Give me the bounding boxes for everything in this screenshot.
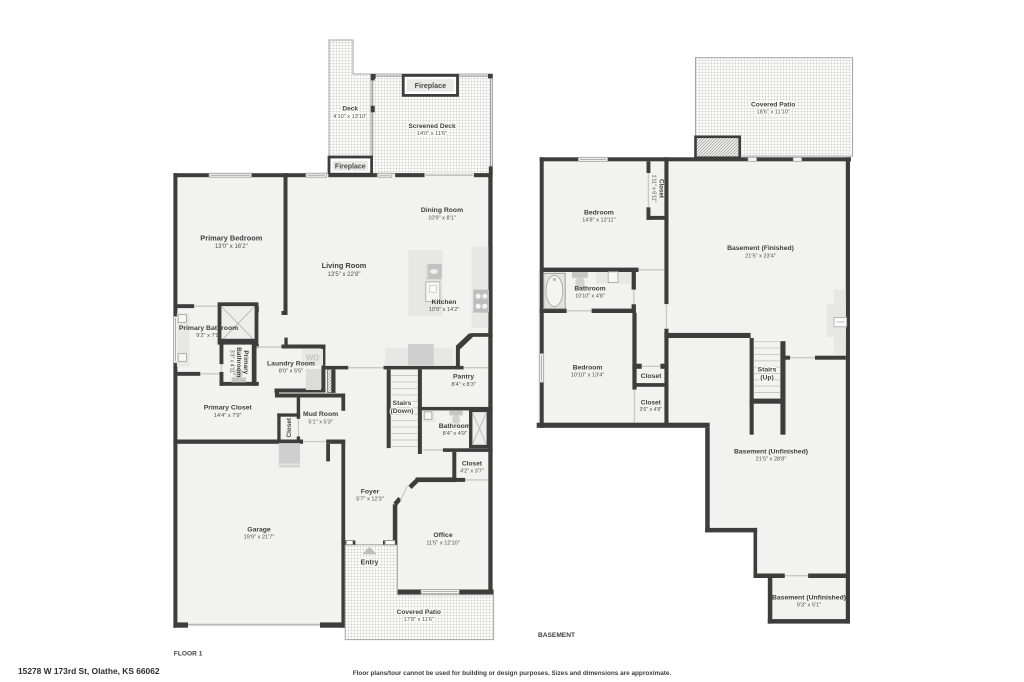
svg-text:17'8" x 11'6": 17'8" x 11'6" <box>404 617 434 623</box>
svg-text:5'1" x 5'3": 5'1" x 5'3" <box>308 419 332 425</box>
svg-text:Living Room: Living Room <box>322 261 367 270</box>
svg-text:8'4" x 4'9": 8'4" x 4'9" <box>443 431 467 437</box>
svg-text:10'10" x 4'8": 10'10" x 4'8" <box>575 294 605 300</box>
svg-text:13'0" x 16'2": 13'0" x 16'2" <box>215 244 248 250</box>
svg-text:9'2" x 7'9": 9'2" x 7'9" <box>196 333 220 339</box>
svg-text:Covered Patio: Covered Patio <box>751 101 795 108</box>
svg-text:(Up): (Up) <box>760 374 774 381</box>
svg-text:Stairs: Stairs <box>393 400 412 407</box>
svg-text:Fireplace: Fireplace <box>415 81 447 90</box>
svg-text:Closet: Closet <box>641 373 663 380</box>
svg-text:(Down): (Down) <box>390 408 413 415</box>
svg-text:Bedroom: Bedroom <box>573 364 603 371</box>
svg-text:Laundry Room: Laundry Room <box>267 361 315 368</box>
svg-text:10'9" x 14'2": 10'9" x 14'2" <box>429 307 460 313</box>
svg-text:Fireplace: Fireplace <box>335 163 366 170</box>
svg-text:13'5" x 22'8": 13'5" x 22'8" <box>328 272 361 278</box>
svg-text:Primary: Primary <box>242 350 249 374</box>
svg-text:Office: Office <box>433 532 452 539</box>
svg-text:21'5" x 28'8": 21'5" x 28'8" <box>756 457 787 463</box>
svg-text:Screened Deck: Screened Deck <box>408 123 456 130</box>
svg-text:Mud Room: Mud Room <box>303 411 338 418</box>
svg-text:Closet: Closet <box>658 179 665 198</box>
svg-text:8'0" x 5'5": 8'0" x 5'5" <box>279 369 303 375</box>
svg-text:21'5" x 23'4": 21'5" x 23'4" <box>745 253 776 259</box>
svg-text:1'11" x 6'11": 1'11" x 6'11" <box>651 175 657 203</box>
svg-text:10'10" x 13'4": 10'10" x 13'4" <box>571 373 605 379</box>
svg-text:Bedroom: Bedroom <box>584 209 614 216</box>
svg-text:Bathroom: Bathroom <box>574 285 605 292</box>
svg-text:Primary Bedroom: Primary Bedroom <box>200 233 262 242</box>
svg-text:11'5" x 12'10": 11'5" x 12'10" <box>426 540 459 546</box>
svg-text:15278 W 173rd St, Olathe, KS 6: 15278 W 173rd St, Olathe, KS 66062 <box>18 666 160 676</box>
svg-text:5'7" x 12'3": 5'7" x 12'3" <box>356 497 384 503</box>
svg-text:Primary Closet: Primary Closet <box>204 405 253 412</box>
svg-text:3'3" x 4'11": 3'3" x 4'11" <box>228 350 234 375</box>
svg-text:Primary Bathroom: Primary Bathroom <box>179 325 238 332</box>
svg-text:8'4" x 8'3": 8'4" x 8'3" <box>451 382 475 388</box>
svg-text:9'3" x 5'1": 9'3" x 5'1" <box>797 603 821 609</box>
svg-text:4'2" x 3'7": 4'2" x 3'7" <box>460 468 484 474</box>
svg-text:14'0" x 11'6": 14'0" x 11'6" <box>417 131 447 137</box>
svg-text:18'6" x 11'10": 18'6" x 11'10" <box>757 110 790 116</box>
svg-text:10'9" x 8'1": 10'9" x 8'1" <box>428 215 456 221</box>
svg-text:3'6" x 4'8": 3'6" x 4'8" <box>639 407 662 413</box>
svg-text:Basement (Finished): Basement (Finished) <box>727 245 794 252</box>
svg-text:Basement (Unfinished): Basement (Unfinished) <box>734 448 808 455</box>
svg-text:FLOOR 1: FLOOR 1 <box>174 651 203 658</box>
svg-text:Bathroom: Bathroom <box>235 347 242 377</box>
svg-text:Floor plans/tour cannot be use: Floor plans/tour cannot be used for buil… <box>353 670 672 677</box>
svg-text:Pantry: Pantry <box>453 374 474 381</box>
svg-text:Garage: Garage <box>247 526 271 533</box>
svg-text:Closet: Closet <box>462 460 483 467</box>
svg-text:Stairs: Stairs <box>758 366 777 373</box>
svg-text:4'10" x 13'10": 4'10" x 13'10" <box>333 114 367 120</box>
svg-text:19'9" x 21'7": 19'9" x 21'7" <box>244 535 275 541</box>
svg-text:Kitchen: Kitchen <box>432 299 457 306</box>
svg-text:Closet: Closet <box>286 417 293 437</box>
svg-text:Covered Patio: Covered Patio <box>397 609 441 616</box>
svg-text:Entry: Entry <box>361 560 379 567</box>
svg-text:14'4" x 7'9": 14'4" x 7'9" <box>214 413 242 419</box>
svg-text:Basement (Unfinished): Basement (Unfinished) <box>772 594 846 601</box>
svg-text:BASEMENT: BASEMENT <box>538 632 575 639</box>
svg-text:Deck: Deck <box>342 106 358 113</box>
svg-text:Dining Room: Dining Room <box>421 207 463 214</box>
svg-text:Foyer: Foyer <box>361 488 380 495</box>
svg-text:Closet: Closet <box>641 399 662 406</box>
svg-text:14'8" x 12'11": 14'8" x 12'11" <box>582 218 615 224</box>
svg-text:Bathroom: Bathroom <box>439 423 471 430</box>
